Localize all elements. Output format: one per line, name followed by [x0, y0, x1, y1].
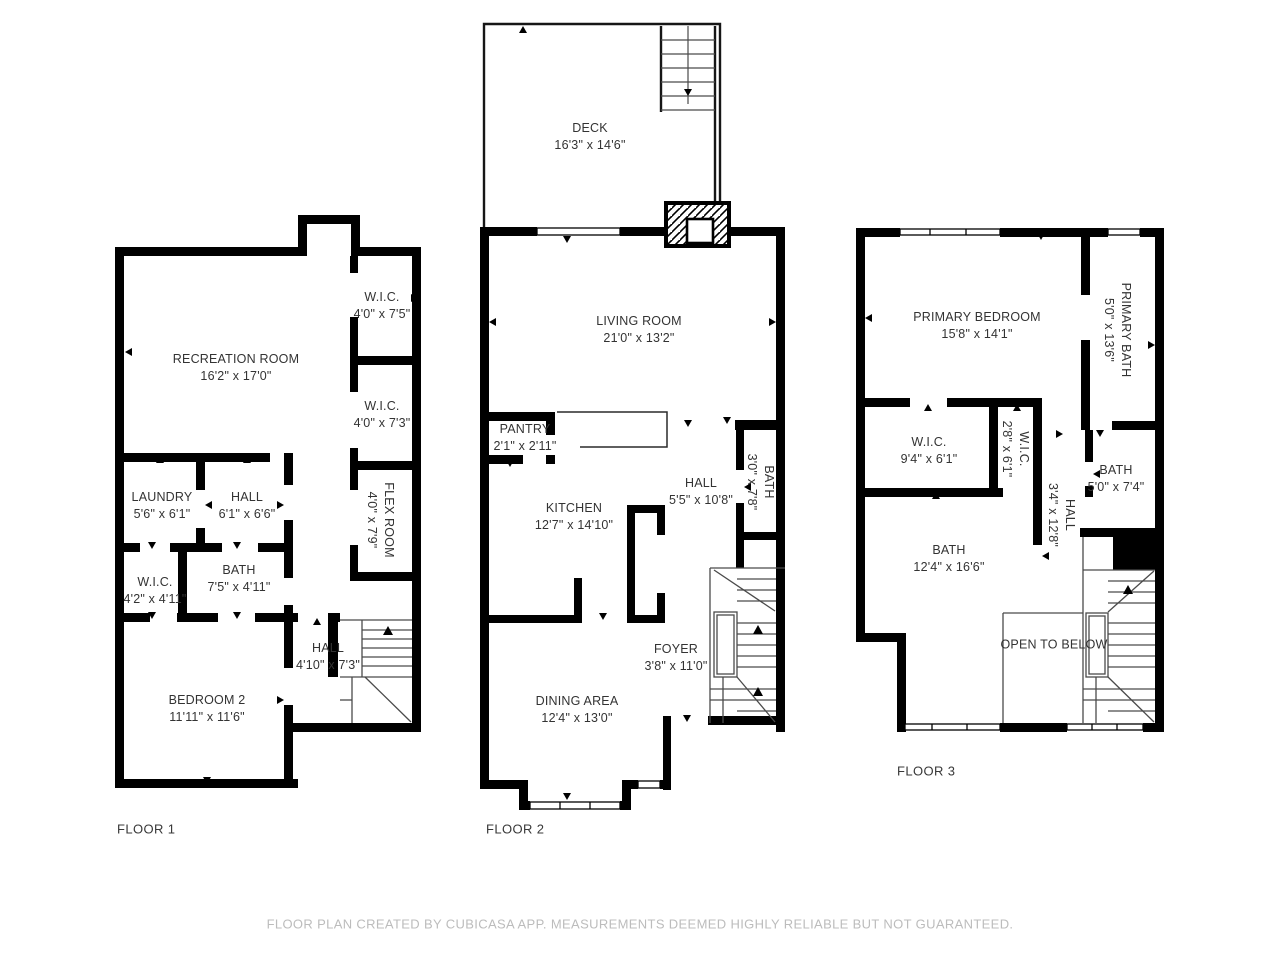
room-dims: 12'4" x 16'6" — [913, 559, 984, 576]
floor-2-label: FLOOR 2 — [486, 822, 544, 837]
room-label-wic-2-f1: W.I.C. 4'0" x 7'3" — [354, 398, 411, 432]
room-name: DINING AREA — [536, 693, 619, 710]
room-label-hall-upper-f1: HALL 6'1" x 6'6" — [219, 489, 276, 523]
footer-disclaimer: FLOOR PLAN CREATED BY CUBICASA APP. MEAS… — [267, 917, 1014, 932]
room-name: KITCHEN — [535, 500, 613, 517]
room-name: PANTRY — [493, 421, 556, 438]
floor-2-stairs — [710, 568, 785, 723]
room-dims: 5'5" x 10'8" — [669, 492, 733, 509]
room-dims: 3'8" x 11'0" — [644, 658, 707, 675]
room-label-primary-bedroom: PRIMARY BEDROOM 15'8" x 14'1" — [913, 309, 1041, 343]
room-name: BATH — [1088, 462, 1145, 479]
room-dims: 16'3" x 14'6" — [554, 137, 625, 154]
floor-2-kitchen-counter — [557, 412, 667, 447]
room-name: RECREATION ROOM — [173, 351, 299, 368]
room-label-bath-f2: BATH 3'0" x 7'8" — [743, 454, 777, 511]
room-dims: 15'8" x 14'1" — [913, 326, 1041, 343]
room-name: PRIMARY BATH — [1117, 283, 1134, 378]
room-dims: 16'2" x 17'0" — [173, 368, 299, 385]
room-label-wic-2-f3: W.I.C. 2'8" x 6'1" — [998, 421, 1032, 478]
room-name: OPEN TO BELOW — [1000, 637, 1107, 654]
room-dims: 4'0" x 7'5" — [354, 306, 411, 323]
room-name: LIVING ROOM — [596, 313, 682, 330]
room-label-primary-bath: PRIMARY BATH 5'0" x 13'6" — [1100, 283, 1134, 378]
room-label-bath-main-f3: BATH 12'4" x 16'6" — [913, 542, 984, 576]
room-name: W.I.C. — [901, 434, 958, 451]
room-label-dining-area: DINING AREA 12'4" x 13'0" — [536, 693, 619, 727]
room-dims: 4'10" x 7'3" — [296, 657, 360, 674]
room-name: PRIMARY BEDROOM — [913, 309, 1041, 326]
room-dims: 5'6" x 6'1" — [132, 506, 193, 523]
room-dims: 4'2" x 4'11" — [123, 591, 186, 608]
room-name: W.I.C. — [123, 574, 186, 591]
room-dims: 2'8" x 6'1" — [998, 421, 1015, 478]
room-label-bath-upper-f3: BATH 5'0" x 7'4" — [1088, 462, 1145, 496]
room-dims: 21'0" x 13'2" — [596, 330, 682, 347]
room-name: BATH — [913, 542, 984, 559]
floorplan-page: RECREATION ROOM 16'2" x 17'0" W.I.C. 4'0… — [0, 0, 1280, 960]
room-name: BEDROOM 2 — [169, 692, 246, 709]
room-dims: 12'7" x 14'10" — [535, 517, 613, 534]
room-name: HALL — [1061, 483, 1078, 547]
room-label-wic-1-f3: W.I.C. 9'4" x 6'1" — [901, 434, 958, 468]
room-label-living-room: LIVING ROOM 21'0" x 13'2" — [596, 313, 682, 347]
room-label-foyer: FOYER 3'8" x 11'0" — [644, 641, 707, 675]
room-dims: 4'0" x 7'9" — [363, 482, 380, 557]
room-label-hall-f3: HALL 3'4" x 12'8" — [1044, 483, 1078, 547]
room-dims: 4'0" x 7'3" — [354, 415, 411, 432]
room-dims: 3'4" x 12'8" — [1044, 483, 1061, 547]
fireplace — [666, 203, 729, 246]
room-label-bath-f1: BATH 7'5" x 4'11" — [207, 562, 270, 596]
room-dims: 5'0" x 13'6" — [1100, 283, 1117, 378]
room-label-wic-3-f1: W.I.C. 4'2" x 4'11" — [123, 574, 186, 608]
room-dims: 9'4" x 6'1" — [901, 451, 958, 468]
room-name: DECK — [554, 120, 625, 137]
floor-1-label: FLOOR 1 — [117, 822, 175, 837]
floor-3-label: FLOOR 3 — [897, 764, 955, 779]
room-label-hall-f2: HALL 5'5" x 10'8" — [669, 475, 733, 509]
room-label-open-to-below: OPEN TO BELOW — [1000, 637, 1107, 654]
room-name: W.I.C. — [354, 289, 411, 306]
room-dims: 6'1" x 6'6" — [219, 506, 276, 523]
room-dims: 12'4" x 13'0" — [536, 710, 619, 727]
room-name: HALL — [219, 489, 276, 506]
room-label-kitchen: KITCHEN 12'7" x 14'10" — [535, 500, 613, 534]
room-label-laundry: LAUNDRY 5'6" x 6'1" — [132, 489, 193, 523]
room-name: W.I.C. — [354, 398, 411, 415]
room-name: LAUNDRY — [132, 489, 193, 506]
room-name: HALL — [669, 475, 733, 492]
room-name: FLEX ROOM — [380, 482, 397, 557]
room-name: BATH — [760, 454, 777, 511]
room-label-hall-lower-f1: HALL 4'10" x 7'3" — [296, 640, 360, 674]
room-dims: 7'5" x 4'11" — [207, 579, 270, 596]
room-label-deck: DECK 16'3" x 14'6" — [554, 120, 625, 154]
room-dims: 2'1" x 2'11" — [493, 438, 556, 455]
room-label-bedroom-2: BEDROOM 2 11'11" x 11'6" — [169, 692, 246, 726]
room-label-flex-room: FLEX ROOM 4'0" x 7'9" — [363, 482, 397, 557]
room-label-recreation-room: RECREATION ROOM 16'2" x 17'0" — [173, 351, 299, 385]
room-dims: 11'11" x 11'6" — [169, 709, 246, 726]
room-dims: 5'0" x 7'4" — [1088, 479, 1145, 496]
room-name: BATH — [207, 562, 270, 579]
room-name: W.I.C. — [1015, 421, 1032, 478]
room-label-pantry: PANTRY 2'1" x 2'11" — [493, 421, 556, 455]
room-label-wic-1-f1: W.I.C. 4'0" x 7'5" — [354, 289, 411, 323]
floor-2-deck-stairs — [661, 26, 715, 110]
room-name: FOYER — [644, 641, 707, 658]
room-dims: 3'0" x 7'8" — [743, 454, 760, 511]
room-name: HALL — [296, 640, 360, 657]
